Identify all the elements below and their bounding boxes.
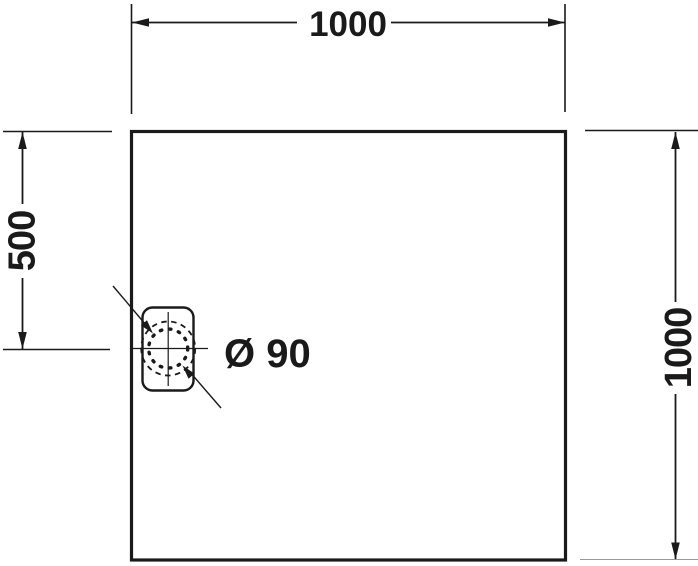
- tray-outline: [132, 132, 566, 561]
- arrowhead-right-bottom-icon: [671, 543, 680, 560]
- arrowhead-top-right-icon: [548, 18, 565, 27]
- arrowhead-right-top-icon: [671, 132, 680, 149]
- arrowhead-top-left-icon: [132, 18, 149, 27]
- drain-assembly: Ø 90: [113, 286, 311, 408]
- technical-drawing-canvas: 1000 500 1000: [0, 0, 698, 566]
- dimension-top-label: 1000: [309, 5, 387, 44]
- technical-drawing-svg: 1000 500 1000: [0, 0, 698, 566]
- dimension-left-label: 500: [2, 211, 44, 271]
- arrowhead-left-top-icon: [18, 132, 27, 149]
- dimension-left: 500: [2, 132, 113, 350]
- drain-diameter-label: Ø 90: [224, 332, 311, 376]
- dimension-right: 1000: [580, 131, 698, 560]
- arrowhead-left-bottom-icon: [18, 332, 27, 349]
- drain-leader-line-upper: [113, 286, 146, 325]
- dimension-right-label: 1000: [658, 308, 698, 389]
- dimension-top: 1000: [132, 4, 566, 114]
- drain-leader-line-lower: [189, 371, 221, 408]
